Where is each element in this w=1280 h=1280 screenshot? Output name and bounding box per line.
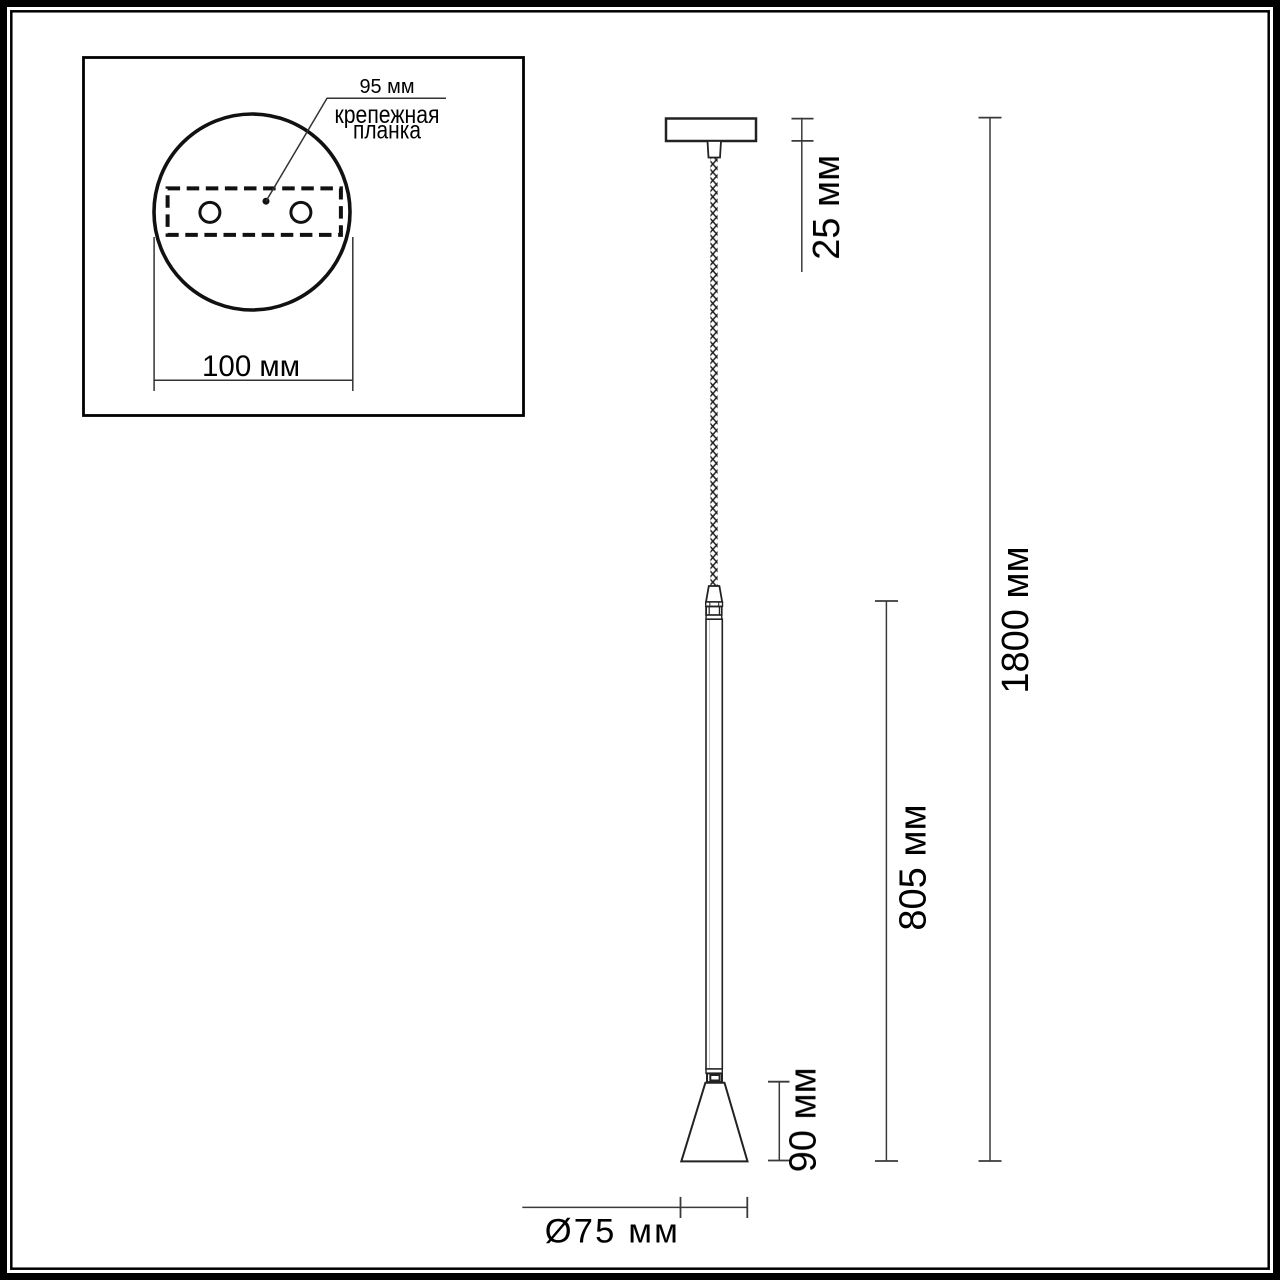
svg-text:100 мм: 100 мм bbox=[202, 350, 300, 383]
svg-text:Ø75 мм: Ø75 мм bbox=[545, 1212, 678, 1250]
svg-text:90 мм: 90 мм bbox=[783, 1067, 825, 1172]
svg-text:95 мм: 95 мм bbox=[360, 76, 415, 98]
svg-text:1800 мм: 1800 мм bbox=[995, 546, 1037, 693]
svg-text:планка: планка bbox=[353, 117, 421, 145]
svg-text:25 мм: 25 мм bbox=[806, 155, 848, 260]
svg-text:805 мм: 805 мм bbox=[893, 804, 935, 930]
